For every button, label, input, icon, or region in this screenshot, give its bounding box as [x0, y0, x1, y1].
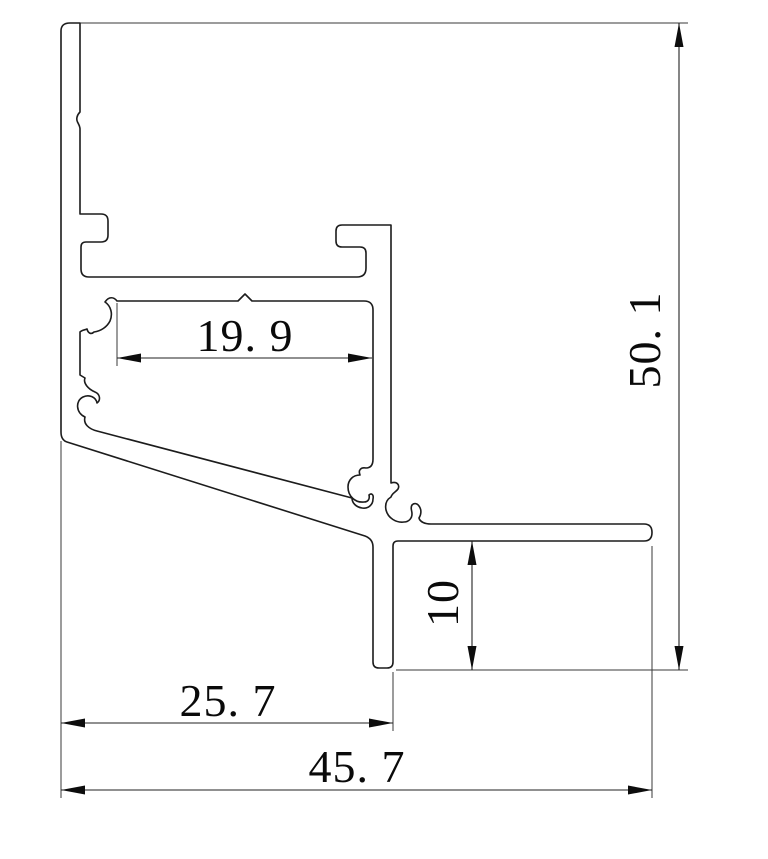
arrow-inner-width-left — [117, 354, 141, 363]
dimension-lines — [61, 23, 679, 790]
arrow-total-width-left — [61, 786, 85, 795]
arrow-left-width-left — [61, 719, 85, 728]
arrow-flange-drop-top — [468, 541, 477, 565]
profile-outer-outline — [61, 23, 652, 668]
arrow-flange-drop-bottom — [468, 646, 477, 670]
arrow-total-height-bottom — [675, 646, 684, 670]
dim-label-inner-width: 19. 9 — [197, 310, 294, 361]
dim-label-total-height: 50. 1 — [619, 292, 670, 389]
dim-label-flange-drop: 10 — [417, 579, 468, 627]
arrow-left-width-right — [369, 719, 393, 728]
extension-lines — [61, 23, 688, 798]
arrow-total-height-top — [675, 23, 684, 47]
profile-section-drawing: 19. 9 50. 1 10 25. 7 45. 7 — [0, 0, 768, 859]
dim-label-left-width: 25. 7 — [180, 675, 277, 726]
dim-label-total-width: 45. 7 — [309, 741, 406, 792]
arrow-inner-width-right — [348, 354, 372, 363]
arrow-total-width-right — [628, 786, 652, 795]
drawing-canvas: 19. 9 50. 1 10 25. 7 45. 7 — [0, 0, 768, 859]
